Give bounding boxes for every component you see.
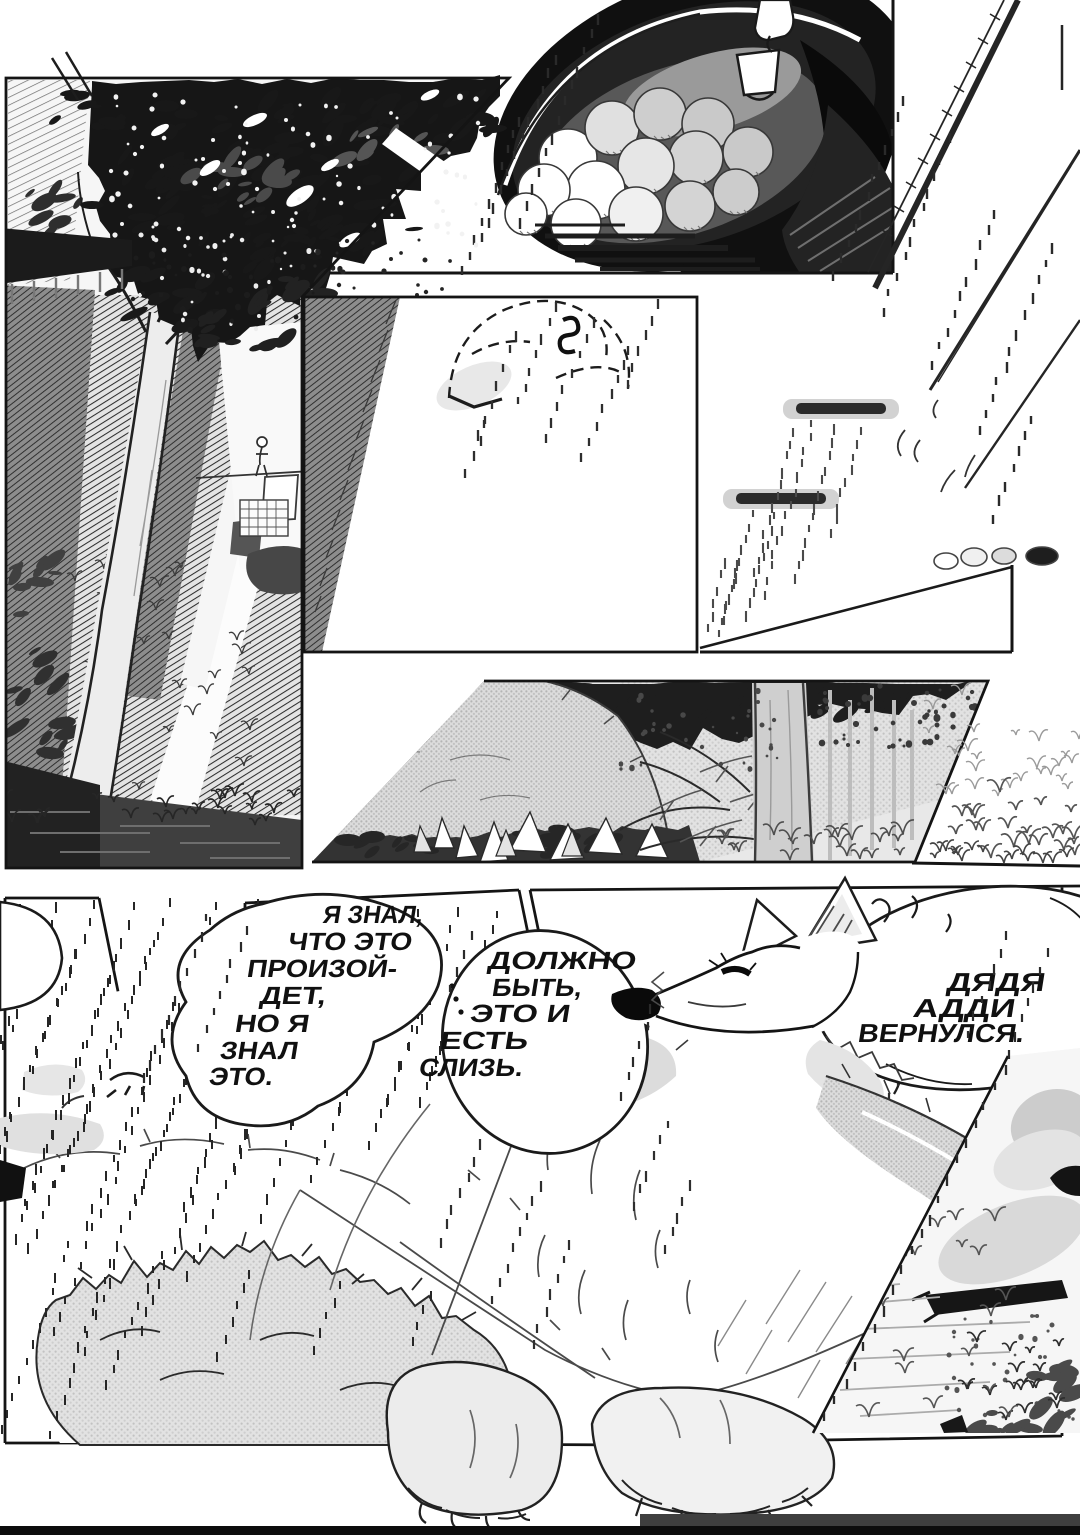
- svg-text:ЭТО.: ЭТО.: [207, 1063, 275, 1091]
- svg-text:СЛИЗЬ.: СЛИЗЬ.: [417, 1054, 525, 1082]
- svg-text:ДЕТ,: ДЕТ,: [258, 982, 328, 1010]
- svg-text:НО Я: НО Я: [233, 1010, 311, 1038]
- svg-text:ЧТО ЭТО: ЧТО ЭТО: [286, 928, 414, 956]
- svg-text:ЕСТЬ: ЕСТЬ: [438, 1027, 530, 1055]
- svg-text:ПРОИЗОЙ-: ПРОИЗОЙ-: [245, 953, 400, 983]
- svg-text:ДОЛЖНО: ДОЛЖНО: [486, 947, 638, 975]
- svg-text:Я ЗНАЛ,: Я ЗНАЛ,: [321, 901, 425, 929]
- svg-text:ВЕРНУЛСЯ.: ВЕРНУЛСЯ.: [856, 1018, 1027, 1048]
- svg-text:ЭТО И: ЭТО И: [468, 1000, 572, 1028]
- svg-text:БЫТЬ,: БЫТЬ,: [490, 974, 584, 1002]
- svg-text:ЗНАЛ: ЗНАЛ: [218, 1037, 300, 1065]
